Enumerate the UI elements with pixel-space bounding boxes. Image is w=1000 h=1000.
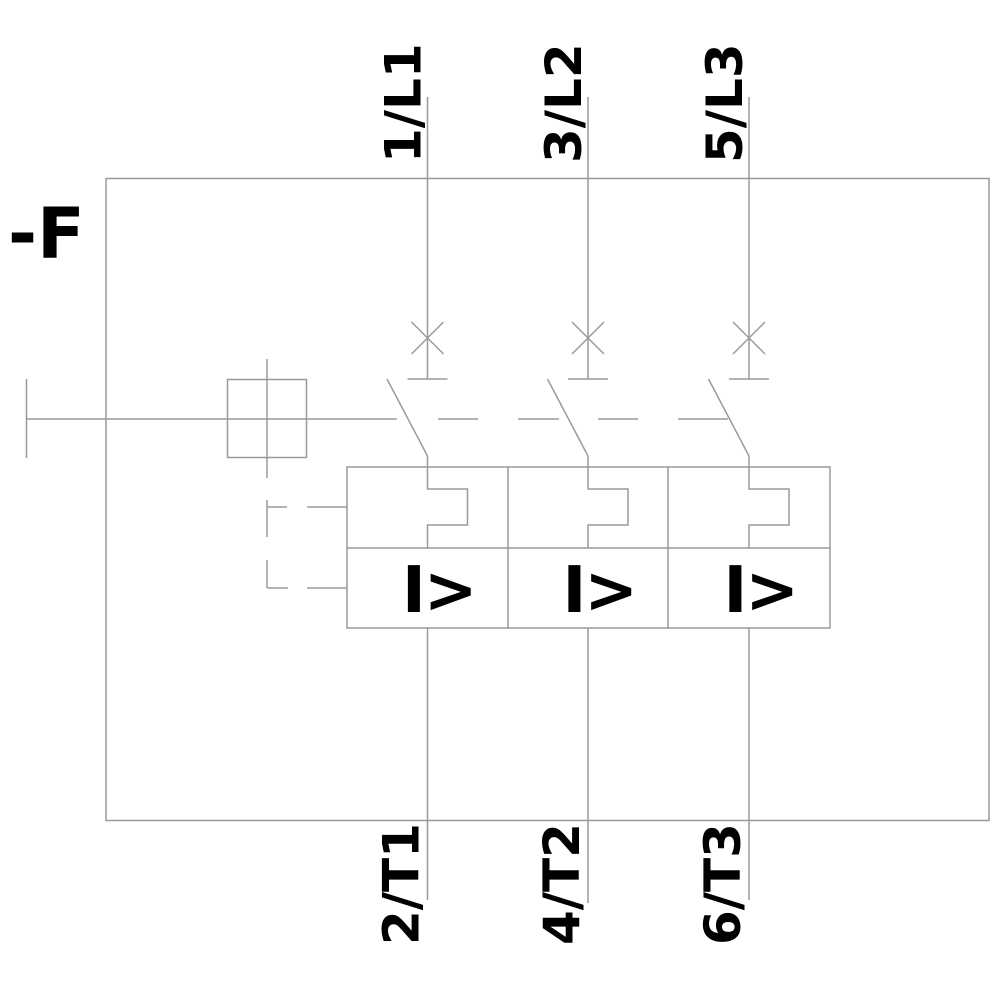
- pole2-top-terminal-label: 3/L2: [535, 43, 593, 163]
- device-reference-label: -F: [8, 193, 85, 275]
- pole1-switch-blade: [387, 379, 428, 456]
- pole2-bottom-terminal-label: 4/T2: [533, 823, 591, 945]
- pole3-bottom-terminal-label: 6/T3: [694, 823, 752, 945]
- pole2-magnetic-trip-label: I>: [563, 554, 636, 628]
- pole2-switch-blade: [548, 379, 589, 456]
- pole1-top-terminal-label: 1/L1: [375, 43, 433, 163]
- pole1-magnetic-trip-label: I>: [402, 554, 475, 628]
- pole3-top-terminal-label: 5/L3: [696, 43, 754, 163]
- pole2-thermal-release-bump-icon: [588, 467, 628, 548]
- pole3-thermal-release-bump-icon: [749, 467, 789, 548]
- pole-3-group: [709, 97, 790, 900]
- pole1-thermal-release-bump-icon: [428, 467, 468, 548]
- pole3-magnetic-trip-label: I>: [724, 554, 797, 628]
- pole-2-group: [548, 97, 629, 903]
- enclosure-group: [106, 179, 989, 821]
- pole1-bottom-terminal-label: 2/T1: [373, 823, 431, 945]
- schematic-page: -F 1/L1 3/L2 5/L3 2/T1 4/T2 6/T3 I> I> I…: [0, 0, 1000, 1000]
- pole3-switch-blade: [709, 379, 750, 456]
- circuit-breaker-diagram: -F 1/L1 3/L2 5/L3 2/T1 4/T2 6/T3 I> I> I…: [0, 0, 1000, 1000]
- device-boundary-box: [106, 179, 989, 821]
- pole-1-group: [387, 97, 468, 900]
